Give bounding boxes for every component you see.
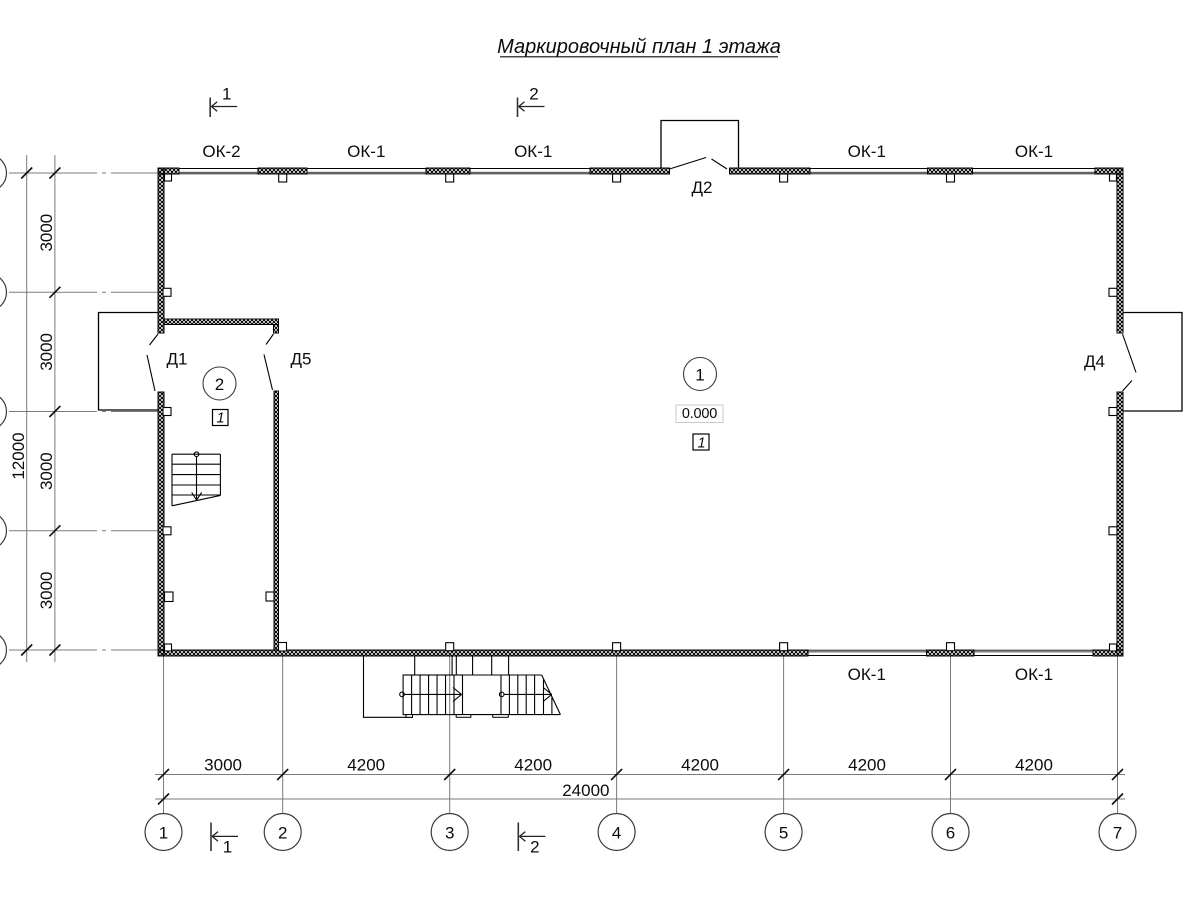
svg-text:ОК-1: ОК-1 (514, 142, 552, 161)
svg-text:4200: 4200 (681, 756, 719, 775)
svg-text:2: 2 (530, 838, 539, 857)
svg-text:7: 7 (1113, 823, 1122, 842)
svg-text:ОК-1: ОК-1 (848, 142, 886, 161)
svg-text:3000: 3000 (37, 452, 56, 490)
svg-text:ОК-1: ОК-1 (1015, 142, 1053, 161)
svg-text:4200: 4200 (1015, 756, 1053, 775)
svg-text:3000: 3000 (37, 214, 56, 252)
svg-text:Д1: Д1 (167, 350, 188, 369)
svg-text:Д2: Д2 (692, 178, 713, 197)
svg-text:4200: 4200 (848, 756, 886, 775)
svg-text:4200: 4200 (514, 756, 552, 775)
svg-text:2: 2 (215, 375, 224, 394)
svg-text:3000: 3000 (37, 333, 56, 371)
svg-text:4200: 4200 (347, 756, 385, 775)
svg-text:3: 3 (445, 823, 454, 842)
svg-text:Маркировочный план 1 этажа: Маркировочный план 1 этажа (497, 36, 781, 58)
svg-text:1: 1 (223, 838, 232, 857)
svg-text:1: 1 (697, 435, 705, 451)
svg-text:1: 1 (695, 365, 704, 384)
svg-text:24000: 24000 (562, 781, 609, 800)
svg-text:0.000: 0.000 (682, 406, 717, 422)
svg-text:2: 2 (529, 85, 538, 104)
svg-text:1: 1 (216, 411, 224, 427)
svg-text:12000: 12000 (9, 432, 28, 479)
svg-text:ОК-1: ОК-1 (347, 142, 385, 161)
svg-text:4: 4 (612, 823, 621, 842)
svg-text:5: 5 (779, 823, 788, 842)
svg-text:ОК-1: ОК-1 (1015, 665, 1053, 684)
svg-text:3000: 3000 (204, 756, 242, 775)
svg-text:ОК-2: ОК-2 (202, 142, 240, 161)
svg-text:1: 1 (222, 85, 231, 104)
svg-text:ОК-1: ОК-1 (848, 665, 886, 684)
svg-text:3000: 3000 (37, 571, 56, 609)
svg-text:2: 2 (278, 823, 287, 842)
svg-text:Д4: Д4 (1084, 352, 1105, 371)
svg-text:Д5: Д5 (291, 350, 312, 369)
svg-text:6: 6 (946, 823, 955, 842)
svg-text:1: 1 (159, 823, 168, 842)
